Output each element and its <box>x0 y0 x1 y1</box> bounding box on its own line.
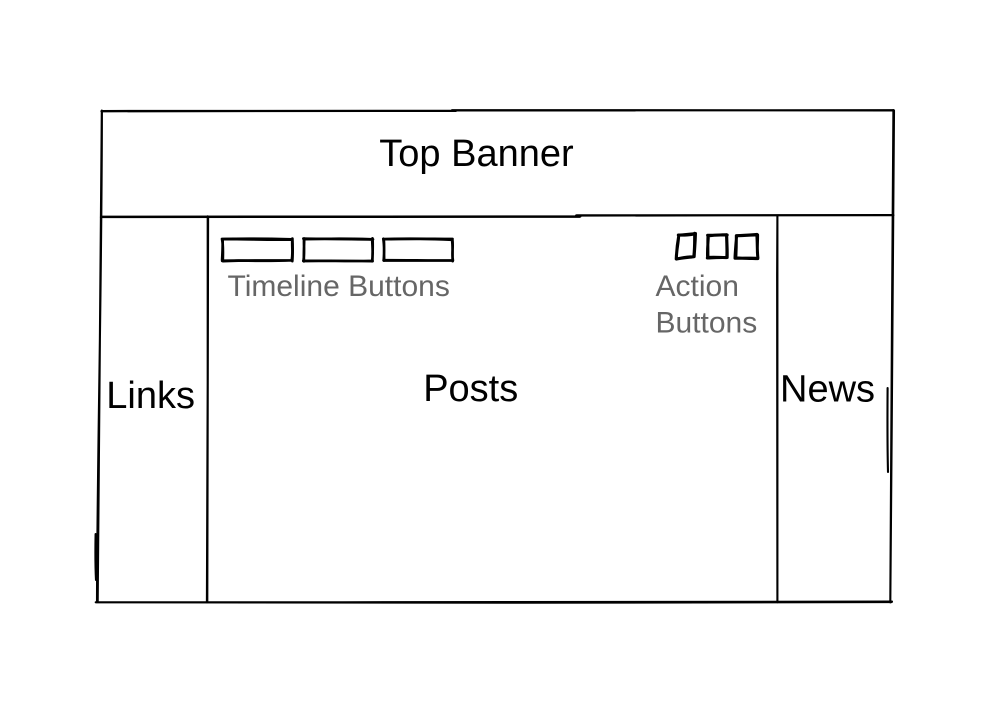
svg-text:News: News <box>780 369 875 411</box>
svg-text:Action: Action <box>656 270 739 303</box>
svg-text:Links: Links <box>106 375 195 417</box>
svg-text:Posts: Posts <box>423 368 518 410</box>
svg-text:Buttons: Buttons <box>656 307 758 340</box>
svg-text:Top Banner: Top Banner <box>379 133 574 175</box>
svg-text:Timeline Buttons: Timeline Buttons <box>228 270 450 303</box>
